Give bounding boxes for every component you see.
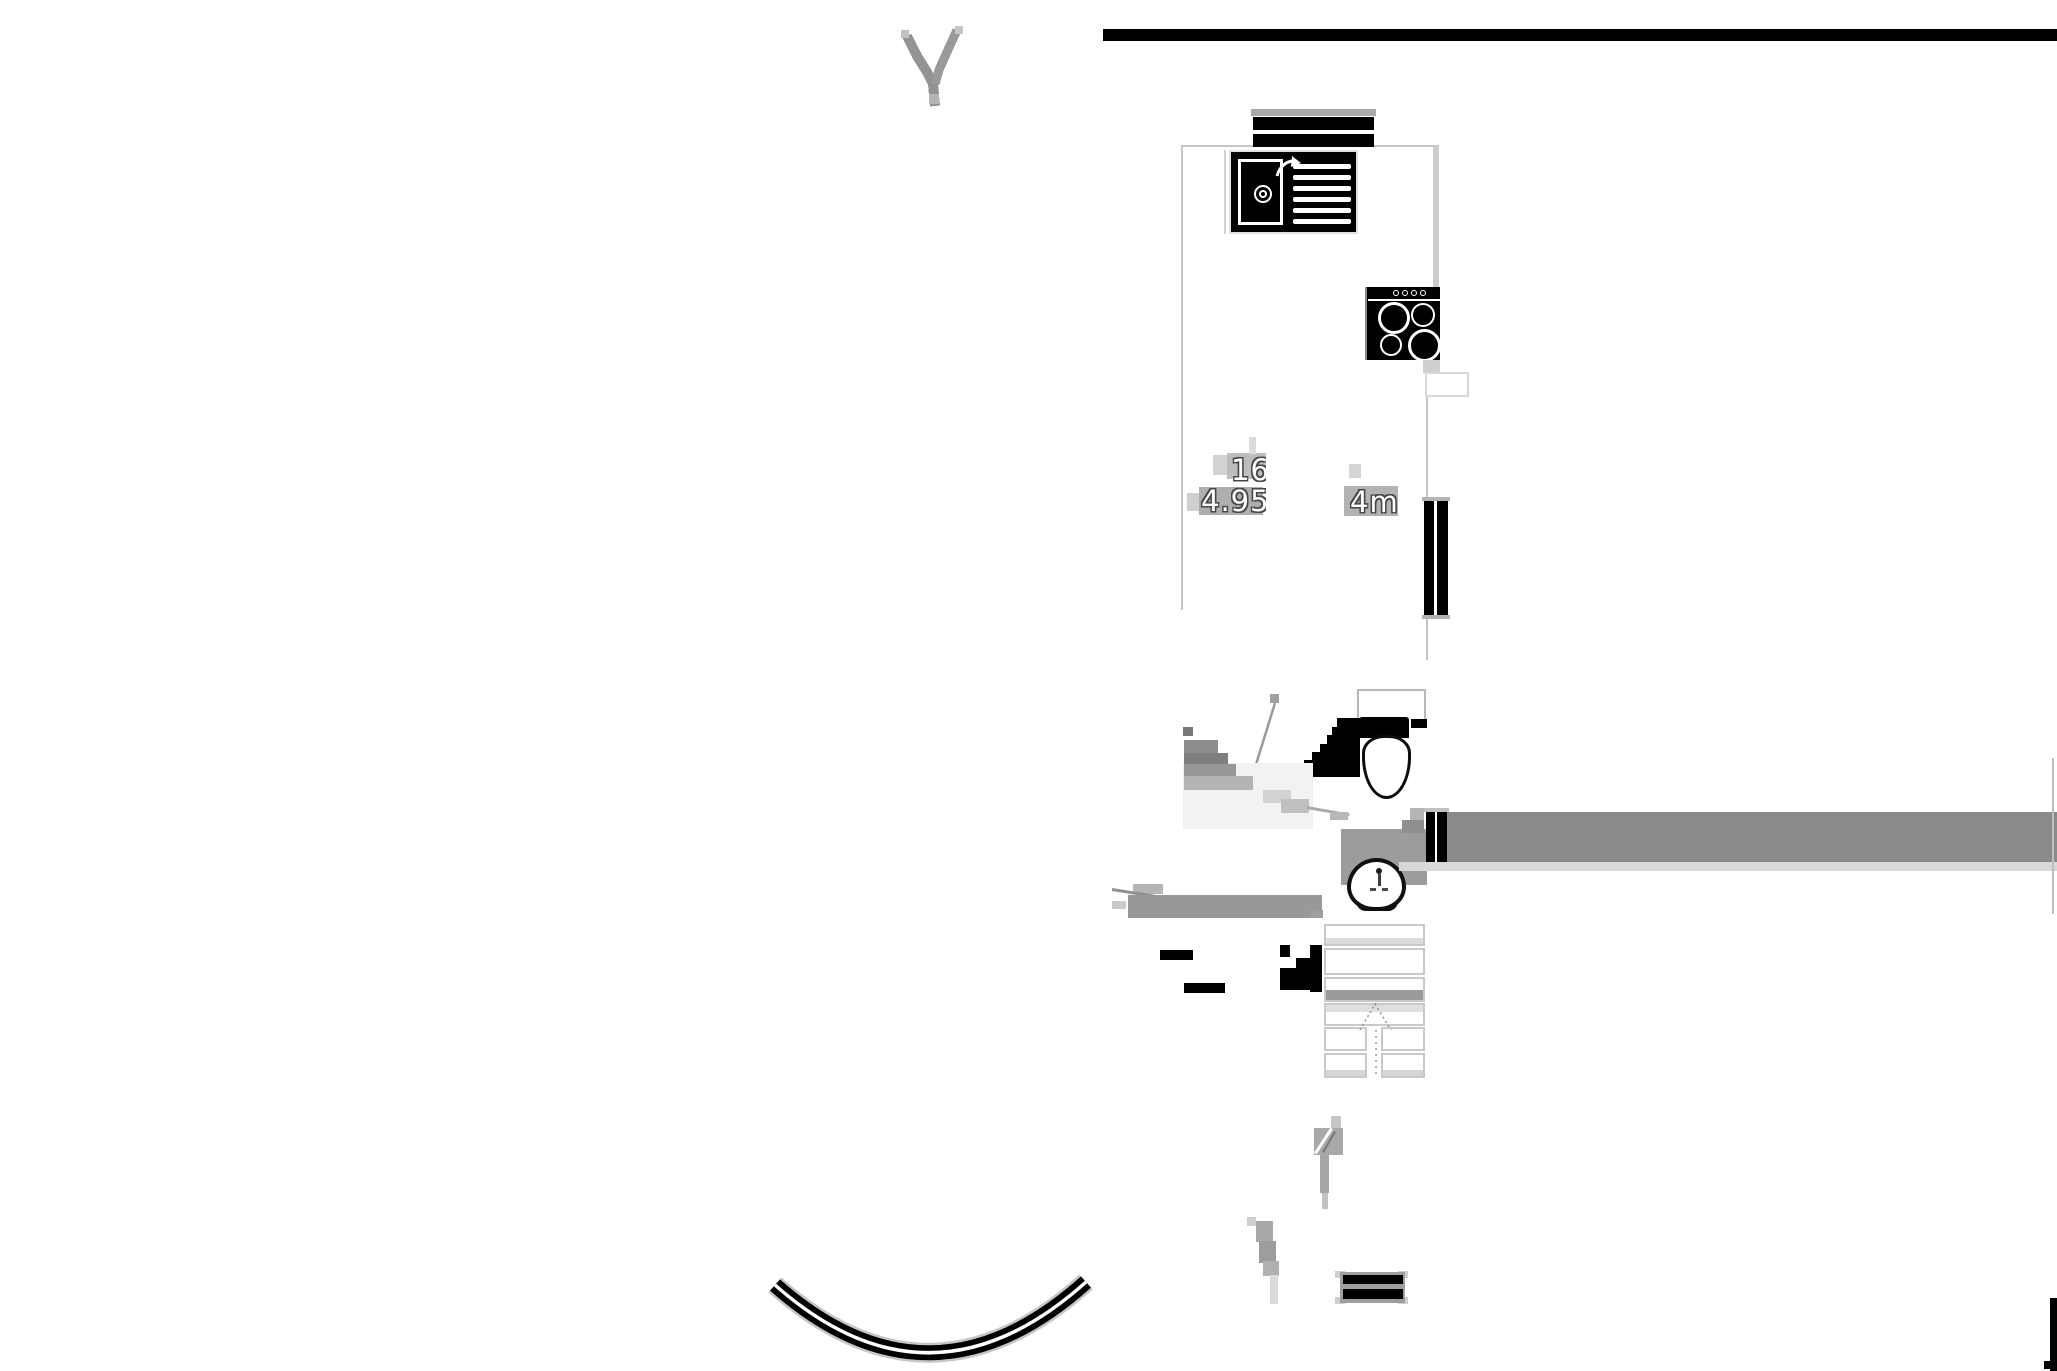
window-east-cap — [1422, 615, 1450, 619]
staircase — [1322, 922, 1430, 1080]
burner-bottom-right — [1408, 329, 1441, 362]
render-artifact — [1184, 740, 1218, 753]
pipe-artifact — [1247, 1217, 1256, 1226]
top-wall — [1103, 29, 2057, 41]
pipe-artifact — [1320, 1155, 1329, 1193]
cooktop — [1365, 287, 1440, 360]
edge-bar-foot — [2044, 1361, 2057, 1369]
hall-wall-band — [1128, 895, 1322, 918]
window-east-bar — [1424, 501, 1434, 615]
burner-top-left — [1378, 302, 1410, 334]
window-east-bar — [1437, 501, 1448, 615]
render-artifact — [1184, 764, 1236, 776]
render-artifact — [1402, 820, 1424, 833]
render-artifact — [1410, 808, 1424, 820]
counter-outline — [1425, 372, 1469, 397]
cooktop-divider — [1368, 299, 1440, 301]
drainboard-lines — [1293, 160, 1353, 226]
counter-edge-line — [1224, 150, 1226, 234]
area-label: 4.95 — [1201, 487, 1270, 516]
window-south — [1340, 1272, 1405, 1303]
burner-top-right — [1411, 303, 1435, 327]
label-tick — [1249, 437, 1256, 454]
wall-corner-block — [1280, 945, 1290, 957]
wash-basin — [1347, 858, 1406, 911]
render-artifact — [1281, 799, 1309, 813]
window-north-bar — [1253, 117, 1374, 130]
label-chip — [1349, 464, 1361, 478]
dimension-label: 4m — [1350, 488, 1399, 517]
black-dash — [1160, 950, 1193, 960]
wall-band-light — [1399, 862, 2057, 871]
pipe-artifact — [1259, 1241, 1276, 1263]
pipe-artifact — [1314, 1128, 1343, 1155]
floor-plan-canvas: 16 4.95 4m — [0, 0, 2057, 1371]
window-north-bar — [1253, 134, 1374, 147]
render-artifact — [1183, 727, 1193, 736]
toilet-bowl — [1362, 735, 1411, 799]
label-chip — [1213, 455, 1227, 475]
door-jamb-bar — [1426, 812, 1435, 863]
render-artifact — [1184, 753, 1228, 764]
burner-bottom-left — [1380, 334, 1402, 356]
door-jamb-bar — [1437, 812, 1447, 863]
floor-plan-screenshot: { "plan": { "labels": { "room_number": "… — [0, 0, 2057, 1371]
tree-icon — [893, 24, 971, 110]
stair-side-square — [1309, 910, 1323, 918]
render-artifact — [1184, 776, 1253, 790]
road-curve — [755, 1262, 1100, 1371]
cooktop-knobs — [1393, 290, 1429, 297]
window-north-cap — [1251, 109, 1376, 116]
pipe-artifact — [1322, 1193, 1328, 1209]
stairs-up-arrow-icon — [1350, 998, 1398, 1080]
black-dash — [1184, 983, 1225, 993]
render-artifact — [1330, 812, 1348, 820]
room-number-label: 16 — [1231, 456, 1270, 485]
edge-line-right — [2052, 758, 2054, 914]
toilet-tank-side — [1411, 719, 1427, 728]
sink-drain-icon — [1254, 185, 1272, 203]
kitchen-sink — [1229, 150, 1358, 234]
stair-side-bar — [1310, 945, 1322, 992]
kitchen-wall-right — [1433, 147, 1439, 287]
pipe-artifact — [1270, 1275, 1278, 1304]
wall-band-right — [1447, 812, 2057, 863]
pipe-artifact — [1331, 1116, 1341, 1128]
stair-tread — [1324, 948, 1425, 975]
pipe-artifact — [1263, 1261, 1279, 1276]
pipe-artifact — [1256, 1221, 1273, 1242]
render-artifact — [1112, 901, 1126, 909]
white-patch — [1266, 430, 1282, 522]
kitchen-wall-left — [1181, 145, 1183, 610]
label-chip — [1187, 493, 1199, 511]
stair-tread — [1324, 924, 1425, 946]
